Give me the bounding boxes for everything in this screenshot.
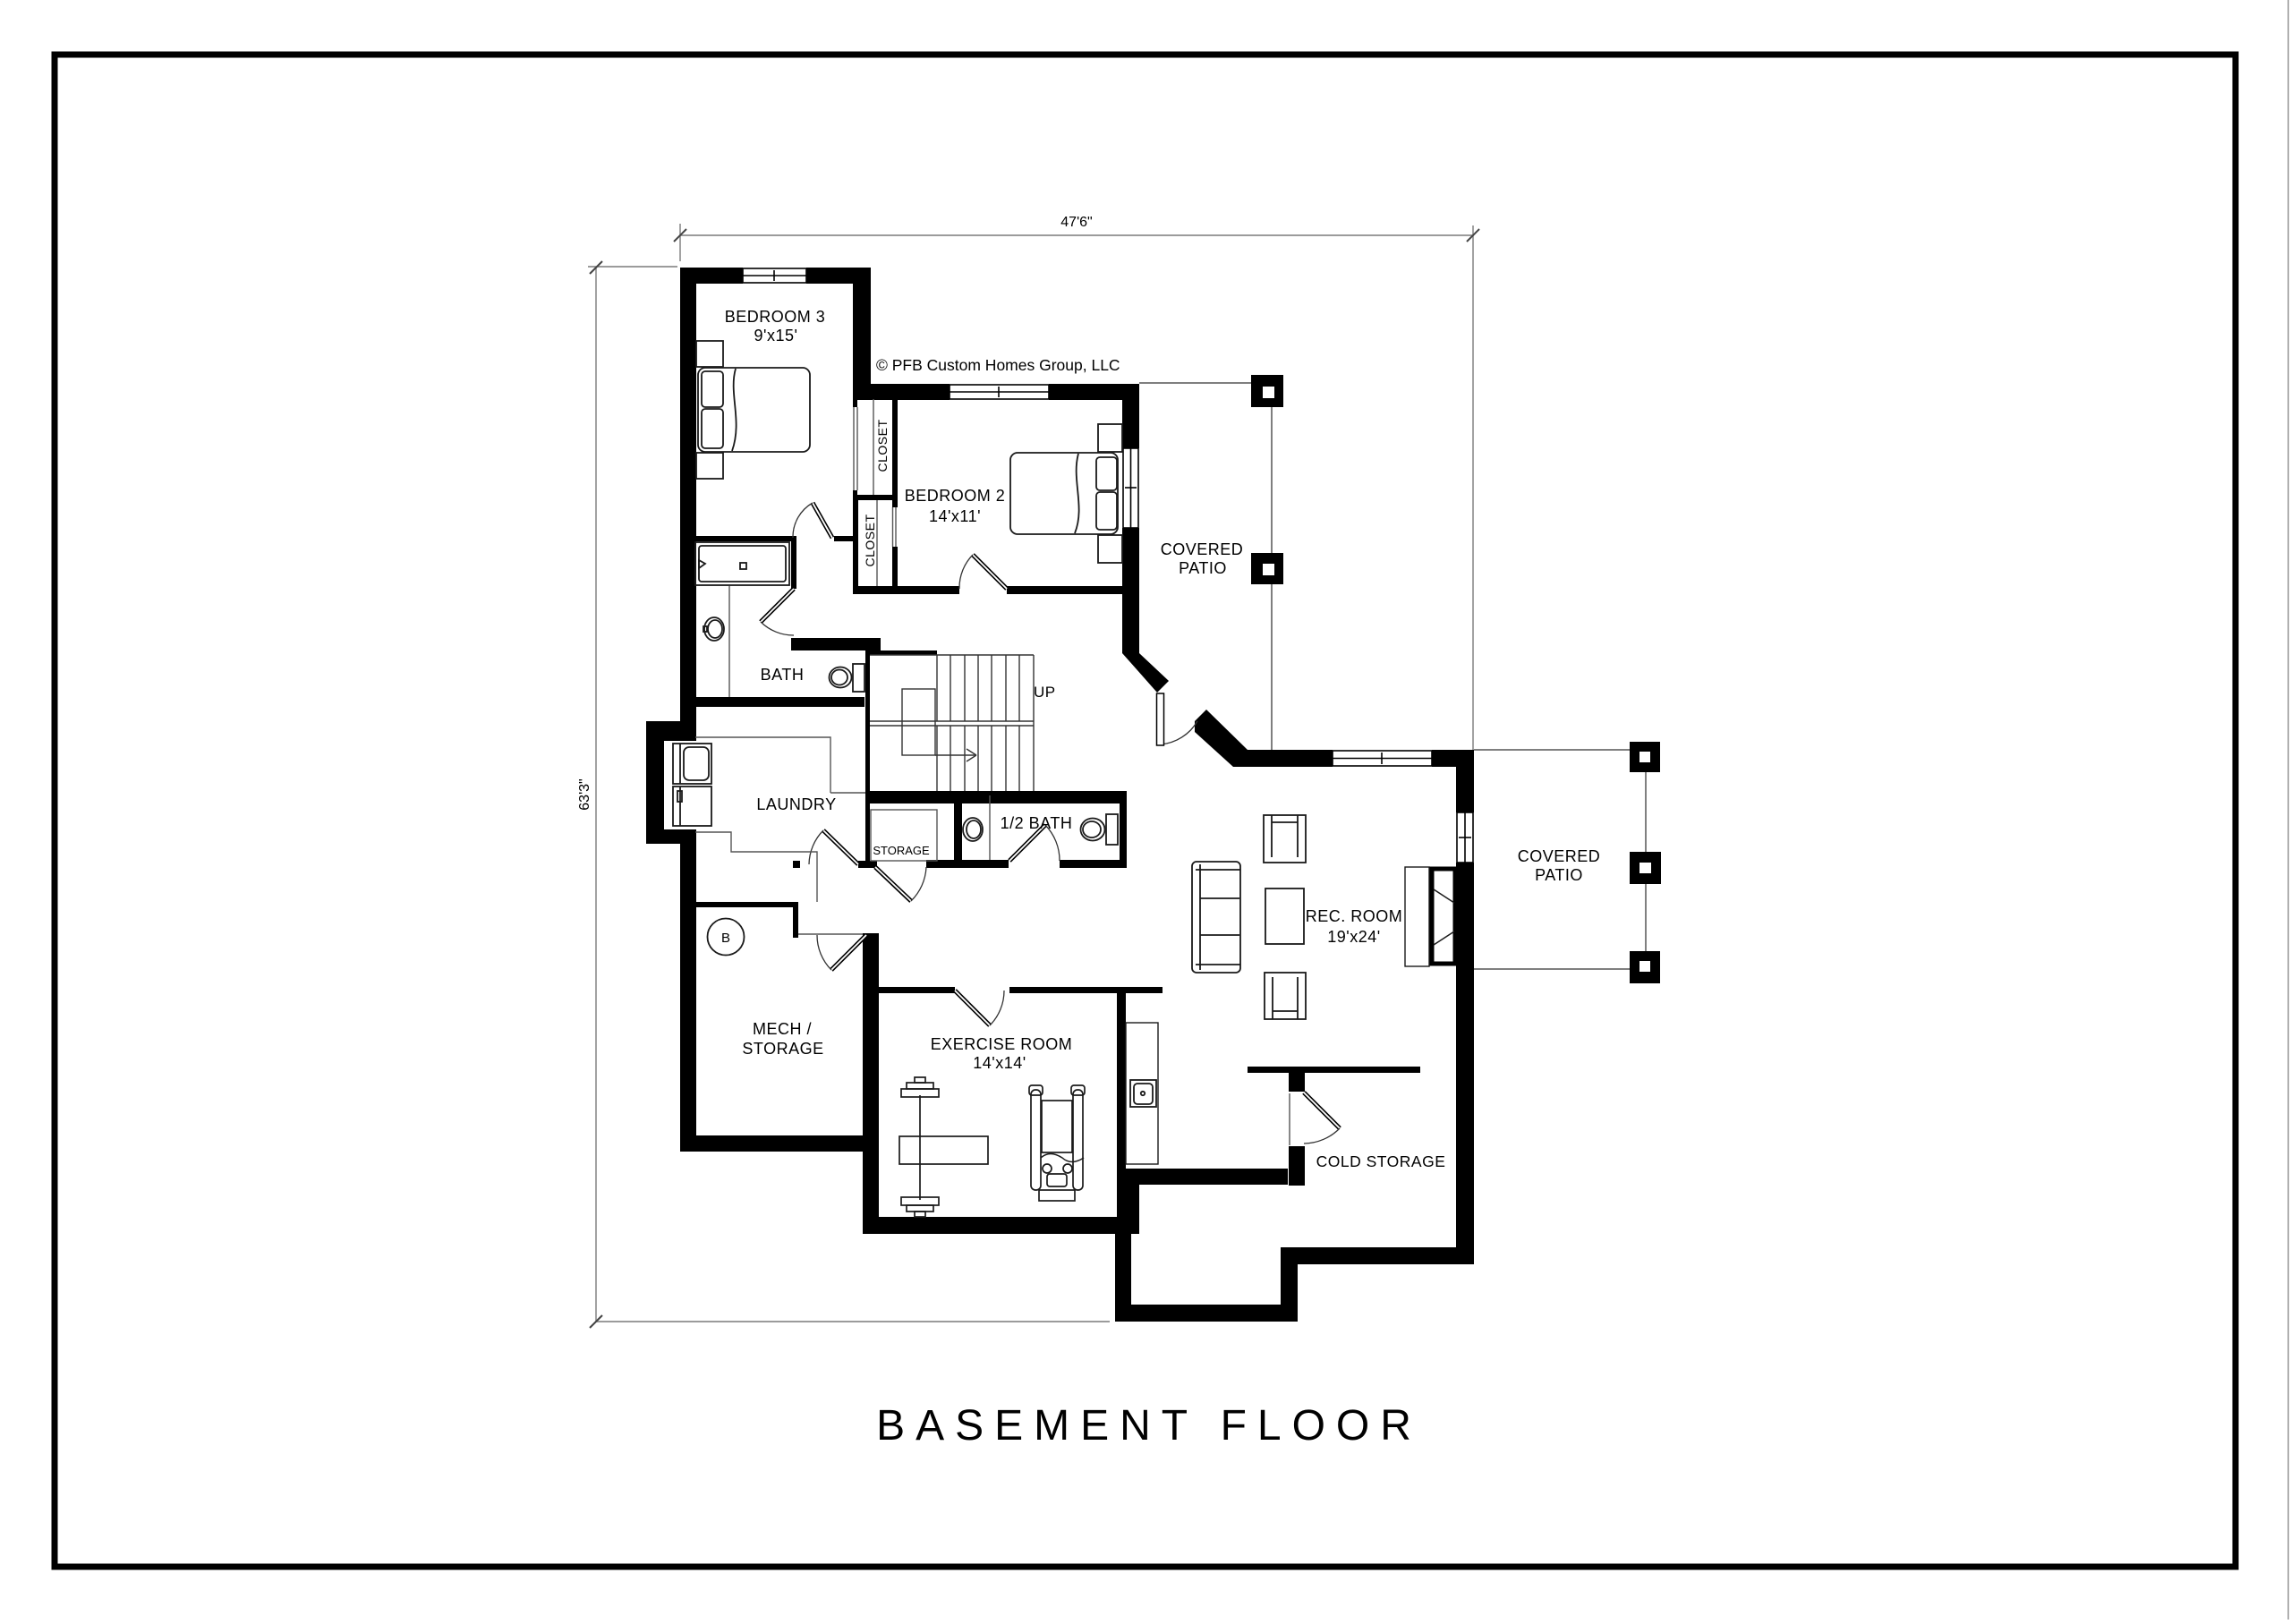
svg-text:MECH /: MECH / [753, 1020, 812, 1038]
svg-text:LAUNDRY: LAUNDRY [756, 795, 836, 813]
svg-text:STORAGE: STORAGE [742, 1040, 823, 1058]
svg-text:EXERCISE ROOM: EXERCISE ROOM [931, 1035, 1073, 1053]
svg-text:PATIO: PATIO [1179, 559, 1227, 577]
svg-text:COVERED: COVERED [1518, 847, 1601, 865]
svg-text:UP: UP [1034, 684, 1056, 701]
svg-text:BATH: BATH [761, 666, 805, 684]
svg-text:CLOSET: CLOSET [875, 419, 890, 472]
svg-text:PATIO: PATIO [1535, 866, 1583, 884]
svg-text:B: B [721, 931, 730, 946]
svg-text:COLD STORAGE: COLD STORAGE [1316, 1152, 1446, 1170]
svg-text:1/2 BATH: 1/2 BATH [1001, 814, 1073, 832]
svg-text:BEDROOM 2: BEDROOM 2 [905, 487, 1006, 505]
svg-text:© PFB Custom Homes Group, LLC: © PFB Custom Homes Group, LLC [876, 356, 1120, 374]
svg-text:CLOSET: CLOSET [863, 514, 877, 566]
svg-text:BEDROOM 3: BEDROOM 3 [725, 308, 826, 326]
svg-text:63'3": 63'3" [577, 778, 592, 810]
svg-text:19'x24': 19'x24' [1327, 928, 1380, 946]
svg-text:47'6": 47'6" [1060, 215, 1092, 230]
svg-text:COVERED: COVERED [1161, 540, 1244, 558]
svg-text:BASEMENT FLOOR: BASEMENT FLOOR [876, 1402, 1422, 1450]
svg-text:9'x15': 9'x15' [754, 327, 798, 344]
svg-text:STORAGE: STORAGE [873, 844, 930, 857]
svg-text:14'x14': 14'x14' [973, 1054, 1026, 1072]
svg-text:REC. ROOM: REC. ROOM [1306, 907, 1403, 925]
svg-text:14'x11': 14'x11' [929, 507, 981, 525]
